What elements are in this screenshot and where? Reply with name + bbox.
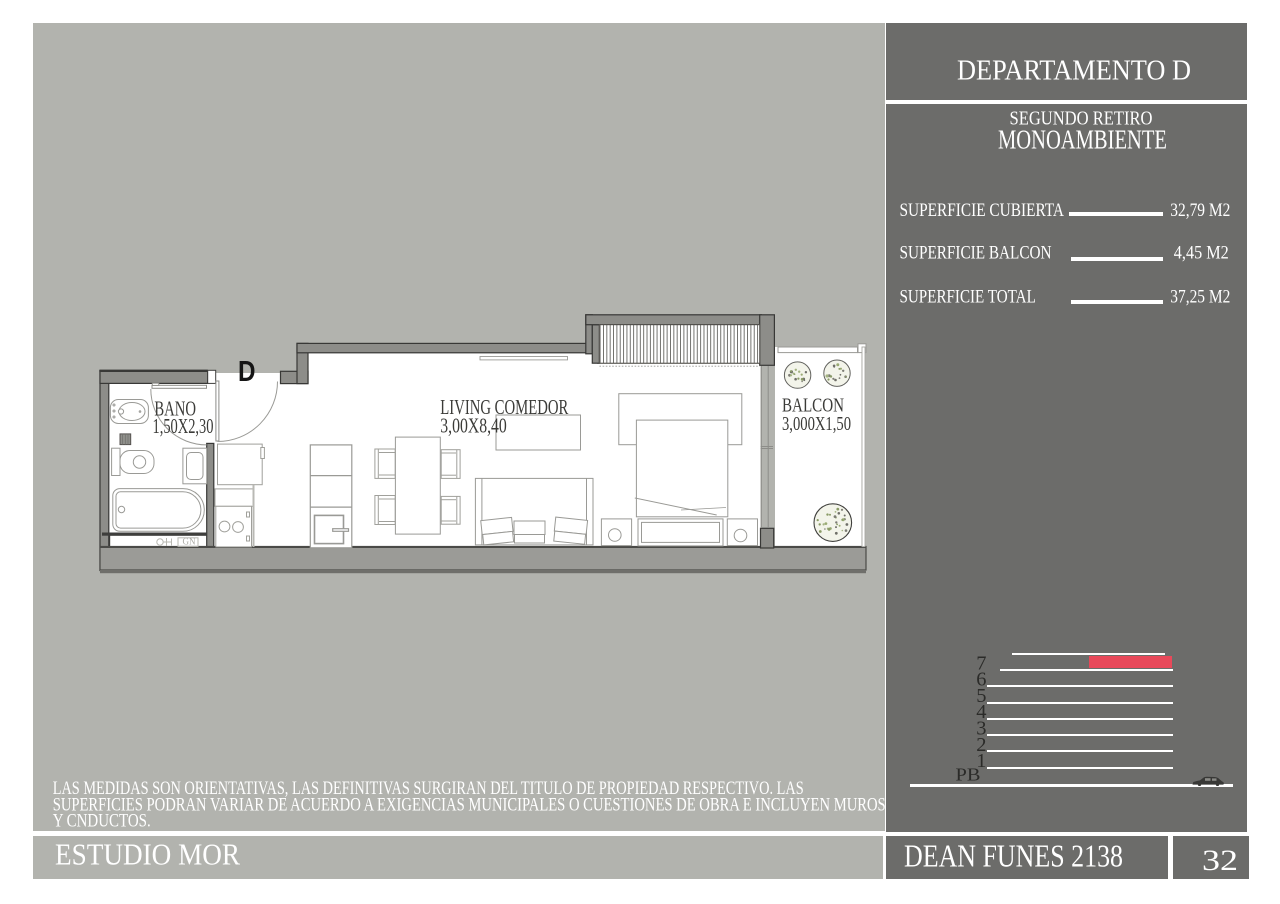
svg-text:SUPERFICIES PODRAN VARIAR DE A: SUPERFICIES PODRAN VARIAR DE ACUERDO A E… [53,794,886,815]
svg-text:ESTUDIO MOR: ESTUDIO MOR [55,836,240,871]
svg-text:SUPERFICIE CUBIERTA: SUPERFICIE CUBIERTA [900,200,1065,221]
svg-text:37,25 M2: 37,25 M2 [1170,287,1230,308]
svg-text:SUPERFICIE BALCON: SUPERFICIE BALCON [900,242,1052,263]
svg-text:32: 32 [1202,844,1238,877]
svg-text:DEAN FUNES 2138: DEAN FUNES 2138 [904,837,1123,873]
svg-text:Y CNDUCTOS.: Y CNDUCTOS. [53,811,151,832]
svg-text:PB: PB [956,765,981,785]
svg-text:32,79 M2: 32,79 M2 [1170,200,1230,221]
svg-text:4,45 M2: 4,45 M2 [1174,242,1229,263]
svg-text:MONOAMBIENTE: MONOAMBIENTE [998,123,1167,154]
svg-text:SUPERFICIE TOTAL: SUPERFICIE TOTAL [900,287,1036,308]
svg-text:DEPARTAMENTO D: DEPARTAMENTO D [957,55,1191,86]
